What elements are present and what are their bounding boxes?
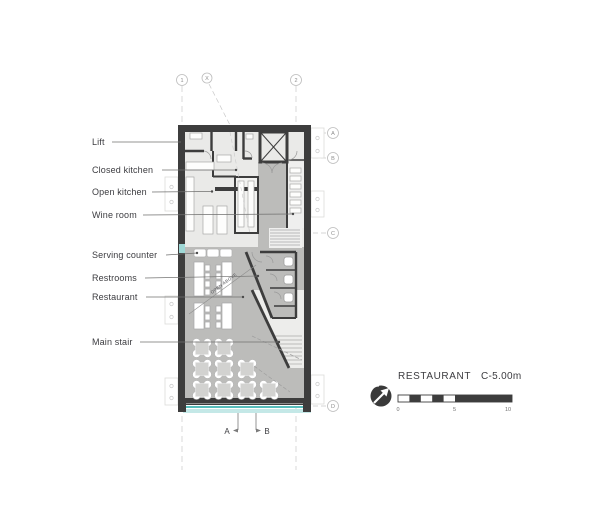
label-main-stair: Main stair [92, 337, 133, 347]
grid-bubble-d: D [331, 404, 335, 410]
label-lift: Lift [92, 137, 105, 147]
drawing-level: C-5.00m [481, 371, 521, 382]
drawing-title: RESTAURANT [398, 371, 471, 382]
label-closed-kitchen: Closed kitchen [92, 165, 153, 175]
label-open-kitchen: Open kitchen [92, 187, 147, 197]
section-letter-a: A [224, 427, 230, 436]
grid-bubble-a: A [331, 131, 335, 137]
scale-tick-10: 10 [505, 407, 511, 413]
grid-bubble-x: X [205, 76, 209, 82]
floor-plan-sheet: OPEN ABOVE 1 X 2 A B C D A B [0, 0, 610, 529]
grid-bubble-c: C [331, 231, 335, 237]
scale-tick-5: 5 [453, 407, 456, 413]
scale-tick-0: 0 [397, 407, 400, 413]
label-restrooms: Restrooms [92, 273, 137, 283]
grid-bubble-2: 2 [294, 78, 297, 84]
label-serving-counter: Serving counter [92, 250, 157, 260]
label-wine-room: Wine room [92, 210, 137, 220]
floor-plan-drawing: OPEN ABOVE 1 X 2 A B C D A B [0, 0, 610, 529]
label-restaurant: Restaurant [92, 292, 138, 302]
north-arrow-icon [371, 386, 392, 407]
grid-bubble-b: B [331, 156, 335, 162]
section-markers: A B [224, 413, 269, 436]
scale-bar: 0 5 10 [397, 395, 513, 413]
grid-bubble-1: 1 [180, 78, 183, 84]
serving-counter [194, 249, 232, 257]
section-letter-b: B [264, 427, 269, 436]
